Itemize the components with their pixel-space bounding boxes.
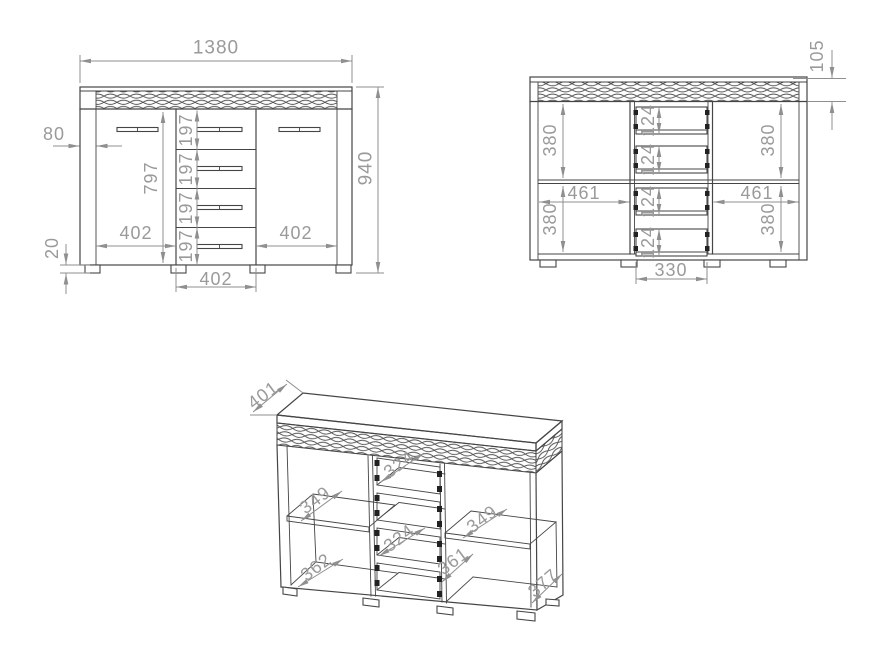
door-handle-right: [279, 128, 320, 132]
dim-lower-right-height: 380: [758, 202, 778, 235]
door-handle-left: [117, 128, 158, 132]
front-view-dimensions: 1380 940 80 797 197 197 197 197 402: [42, 38, 384, 295]
dim-upper-left-height: 380: [540, 123, 560, 156]
dim-drawer-front-1: 197: [176, 113, 196, 146]
dim-door-height: 797: [141, 161, 161, 194]
dim-top-depth: 401: [244, 377, 282, 413]
dim-center-base-width: 330: [654, 260, 687, 280]
dim-drawer-front-4: 197: [176, 229, 196, 262]
dim-side-stile: 80: [43, 124, 65, 144]
isometric-view: 401 349 324 324 349 362 361 377: [244, 377, 563, 621]
dim-left-shelf-width: 461: [567, 183, 600, 203]
decor-band-front: [96, 91, 337, 109]
internal-view: 105 380 380 380 380 461 461 124 124 124 …: [530, 39, 846, 284]
dim-drawer-front-3: 197: [176, 191, 196, 224]
dim-right-inner-depth: 361: [434, 543, 472, 579]
dim-right-door-width: 402: [279, 223, 312, 243]
dim-overall-height: 940: [356, 151, 377, 186]
dim-drawer-box-3: 124: [638, 185, 658, 218]
dim-overall-width: 1380: [193, 38, 239, 59]
internal-view-cabinet: [530, 77, 807, 267]
furniture-dimension-drawing: 1380 940 80 797 197 197 197 197 402: [0, 0, 880, 660]
dim-left-shelf-depth: 349: [296, 482, 334, 518]
iso-dimensions: 401 349 324 324 349 362 361 377: [244, 377, 562, 603]
dim-drawer-front-2: 197: [176, 152, 196, 185]
decor-band-iso-side: [536, 429, 562, 473]
front-view-cabinet: [80, 87, 352, 273]
dim-top-band-height: 105: [807, 39, 827, 72]
dim-right-shelf-width: 461: [740, 183, 773, 203]
dim-left-floor-depth: 362: [297, 549, 335, 585]
dim-drawer-box-4: 124: [638, 226, 658, 259]
dim-left-door-width: 402: [119, 223, 152, 243]
front-view: 1380 940 80 797 197 197 197 197 402: [42, 38, 384, 295]
dim-drawer-column-width: 402: [199, 269, 232, 289]
decor-band-internal: [538, 82, 799, 102]
drawer-handles: [197, 128, 242, 249]
dim-right-shelf-depth: 349: [463, 501, 501, 537]
dim-drawer-box-2: 124: [638, 143, 658, 176]
dim-foot-height: 20: [42, 237, 62, 259]
technical-drawing-page: 1380 940 80 797 197 197 197 197 402: [0, 0, 880, 660]
iso-feet: [283, 587, 559, 621]
dim-lower-left-height: 380: [540, 202, 560, 235]
dim-drawer-box-1: 124: [638, 104, 658, 137]
dim-upper-right-height: 380: [758, 123, 778, 156]
